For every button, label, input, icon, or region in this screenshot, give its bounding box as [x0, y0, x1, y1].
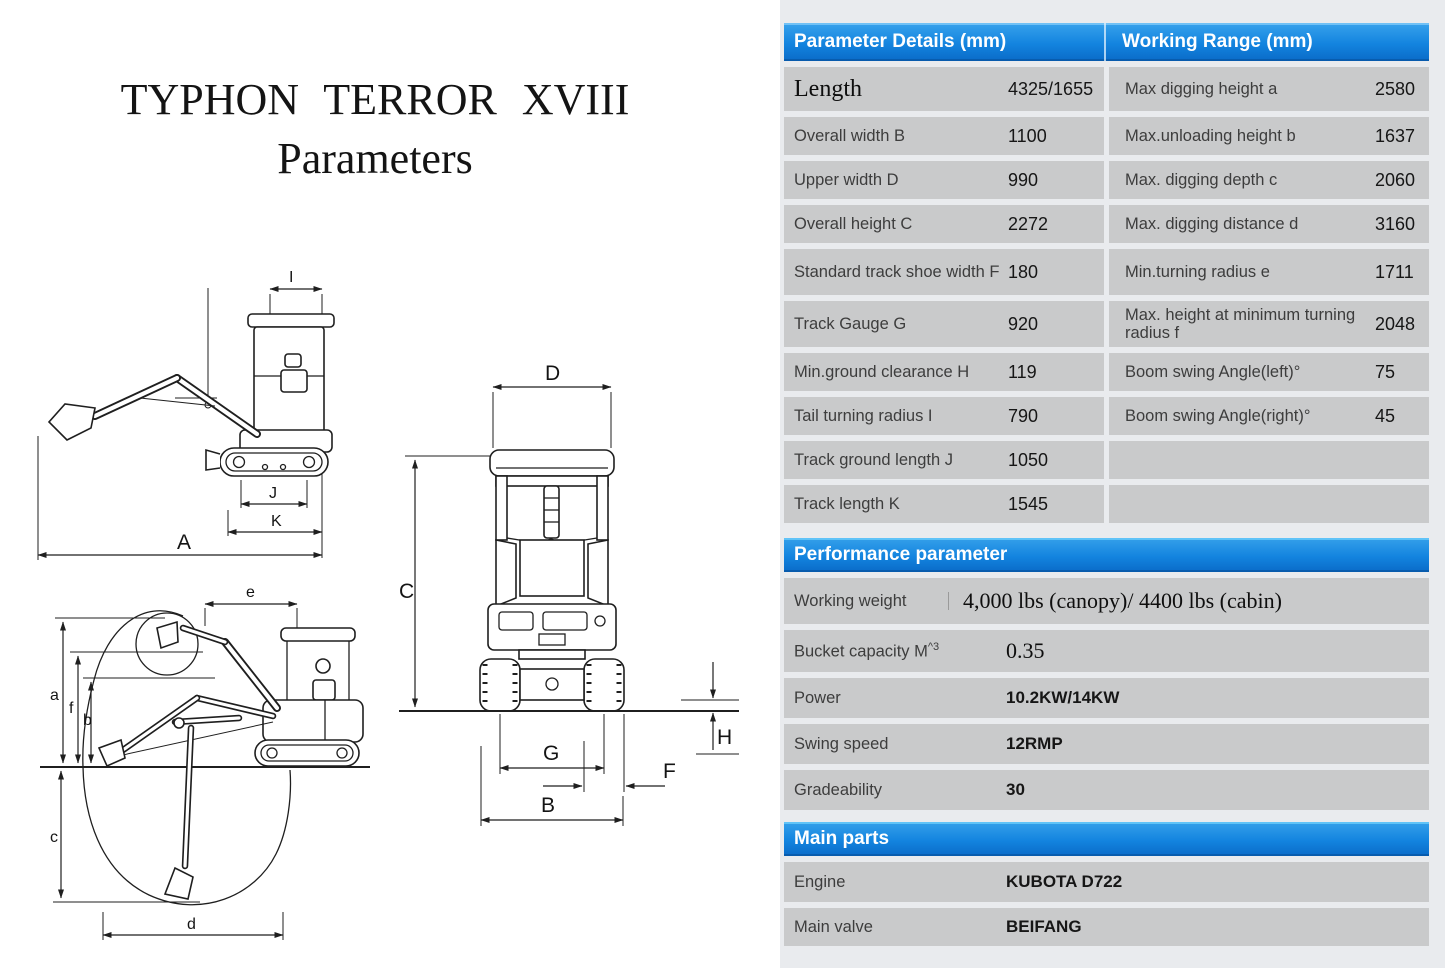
row-value: 1100 — [1008, 126, 1104, 147]
row-value: BEIFANG — [1006, 917, 1429, 937]
row-value: 30 — [1006, 780, 1429, 800]
dim-label-a: a — [50, 687, 59, 704]
table-row: Length4325/1655 Max digging height a2580 — [784, 67, 1429, 111]
row-label: Boom swing Angle(right)° — [1109, 407, 1375, 425]
table-header: Parameter Details (mm) Working Range (mm… — [784, 23, 1429, 61]
diagram-panel: TYPHON TERROR XVIII Parameters I — [0, 0, 780, 968]
row-label: Length — [784, 76, 1008, 103]
row-label: Track Gauge G — [784, 315, 1008, 333]
table-row: Tail turning radius I790 Boom swing Angl… — [784, 397, 1429, 435]
performance-row: Bucket capacity M^3 0.35 — [784, 630, 1429, 672]
row-label: Max. digging distance d — [1109, 215, 1375, 233]
table-row: Standard track shoe width F180 Min.turni… — [784, 249, 1429, 295]
table-row: Overall width B1100 Max.unloading height… — [784, 117, 1429, 155]
row-value: 4,000 lbs (canopy)/ 4400 lbs (cabin) — [963, 588, 1429, 614]
row-value: 180 — [1008, 262, 1104, 283]
table-row: Overall height C2272 Max. digging distan… — [784, 205, 1429, 243]
dim-label-K: K — [271, 513, 282, 530]
table-row: Track length K1545 — [784, 485, 1429, 523]
page-title-line1: TYPHON TERROR XVIII — [55, 70, 695, 129]
row-label: Track length K — [784, 495, 1008, 513]
performance-row: Working weight 4,000 lbs (canopy)/ 4400 … — [784, 578, 1429, 624]
row-value: 990 — [1008, 170, 1104, 191]
main-parts-row: Main valve BEIFANG — [784, 908, 1429, 946]
dim-label-d: d — [187, 916, 196, 933]
row-value: KUBOTA D722 — [1006, 872, 1429, 892]
row-label: Standard track shoe width F — [784, 263, 1008, 281]
table-header-parameter-details: Parameter Details (mm) — [784, 23, 1104, 61]
row-value: 790 — [1008, 406, 1104, 427]
section-header-performance: Performance parameter — [784, 538, 1429, 572]
row-label: Main valve — [784, 918, 1006, 936]
dim-label-b: b — [83, 712, 92, 729]
table-row: Min.ground clearance H119 Boom swing Ang… — [784, 353, 1429, 391]
section-header-main-parts: Main parts — [784, 822, 1429, 856]
performance-row: Gradeability 30 — [784, 770, 1429, 810]
row-value: 1545 — [1008, 494, 1104, 515]
dim-label-B: B — [541, 794, 555, 817]
front-view-diagram: D C H — [393, 356, 745, 834]
dim-label-F: F — [663, 760, 676, 783]
row-value: 75 — [1375, 362, 1429, 383]
row-label: Overall height C — [784, 215, 1008, 233]
spec-table: Parameter Details (mm) Working Range (mm… — [784, 23, 1429, 946]
dim-label-e: e — [246, 584, 255, 601]
row-label: Min.ground clearance H — [784, 363, 1008, 381]
row-label: Bucket capacity M^3 — [784, 641, 1006, 661]
row-label: Power — [784, 689, 1006, 707]
side-view-diagram: I J K A — [25, 258, 345, 568]
row-value: 1711 — [1375, 262, 1429, 283]
row-label: Min.turning radius e — [1109, 263, 1375, 281]
dim-label-c: c — [50, 829, 58, 846]
row-label: Tail turning radius I — [784, 407, 1008, 425]
row-value: 2048 — [1375, 314, 1429, 335]
row-label: Track ground length J — [784, 451, 1008, 469]
row-label: Max. digging depth c — [1109, 171, 1375, 189]
spec-panel: Parameter Details (mm) Working Range (mm… — [780, 0, 1445, 968]
page-title-line2: Parameters — [55, 129, 695, 188]
row-value: 0.35 — [1006, 638, 1429, 664]
row-value: 1637 — [1375, 126, 1429, 147]
table-row: Track ground length J1050 — [784, 441, 1429, 479]
performance-row: Swing speed 12RMP — [784, 724, 1429, 764]
row-value: 12RMP — [1006, 734, 1429, 754]
row-value: 10.2KW/14KW — [1006, 688, 1429, 708]
row-label: Max. height at minimum turning radius f — [1109, 306, 1375, 343]
dim-label-I: I — [289, 269, 293, 286]
row-label: Upper width D — [784, 171, 1008, 189]
working-range-diagram: e a f b c — [25, 582, 385, 957]
table-header-working-range: Working Range (mm) — [1104, 23, 1429, 61]
divider-tick — [948, 592, 949, 610]
row-value: 45 — [1375, 406, 1429, 427]
dim-label-D: D — [545, 362, 560, 385]
dim-label-C: C — [399, 580, 414, 603]
row-value: 2060 — [1375, 170, 1429, 191]
page-title: TYPHON TERROR XVIII Parameters — [55, 70, 695, 189]
dim-label-f: f — [69, 700, 74, 717]
row-label: Engine — [784, 873, 1006, 891]
dim-label-H: H — [717, 726, 732, 749]
row-label: Max digging height a — [1109, 80, 1375, 98]
row-value: 920 — [1008, 314, 1104, 335]
dim-label-J: J — [269, 485, 277, 502]
row-label: Gradeability — [784, 781, 1006, 799]
row-label: Swing speed — [784, 735, 1006, 753]
row-value: 2580 — [1375, 79, 1429, 100]
row-value: 1050 — [1008, 450, 1104, 471]
table-row: Track Gauge G920 Max. height at minimum … — [784, 301, 1429, 347]
row-value: 2272 — [1008, 214, 1104, 235]
table-row: Upper width D990 Max. digging depth c206… — [784, 161, 1429, 199]
row-label: Max.unloading height b — [1109, 127, 1375, 145]
main-parts-row: Engine KUBOTA D722 — [784, 862, 1429, 902]
row-label: Boom swing Angle(left)° — [1109, 363, 1375, 381]
row-value: 4325/1655 — [1008, 79, 1104, 100]
row-value: 119 — [1008, 362, 1104, 383]
row-label: Overall width B — [784, 127, 1008, 145]
performance-row: Power 10.2KW/14KW — [784, 678, 1429, 718]
dim-label-G: G — [543, 742, 559, 765]
dim-label-A: A — [177, 531, 191, 554]
row-value: 3160 — [1375, 214, 1429, 235]
